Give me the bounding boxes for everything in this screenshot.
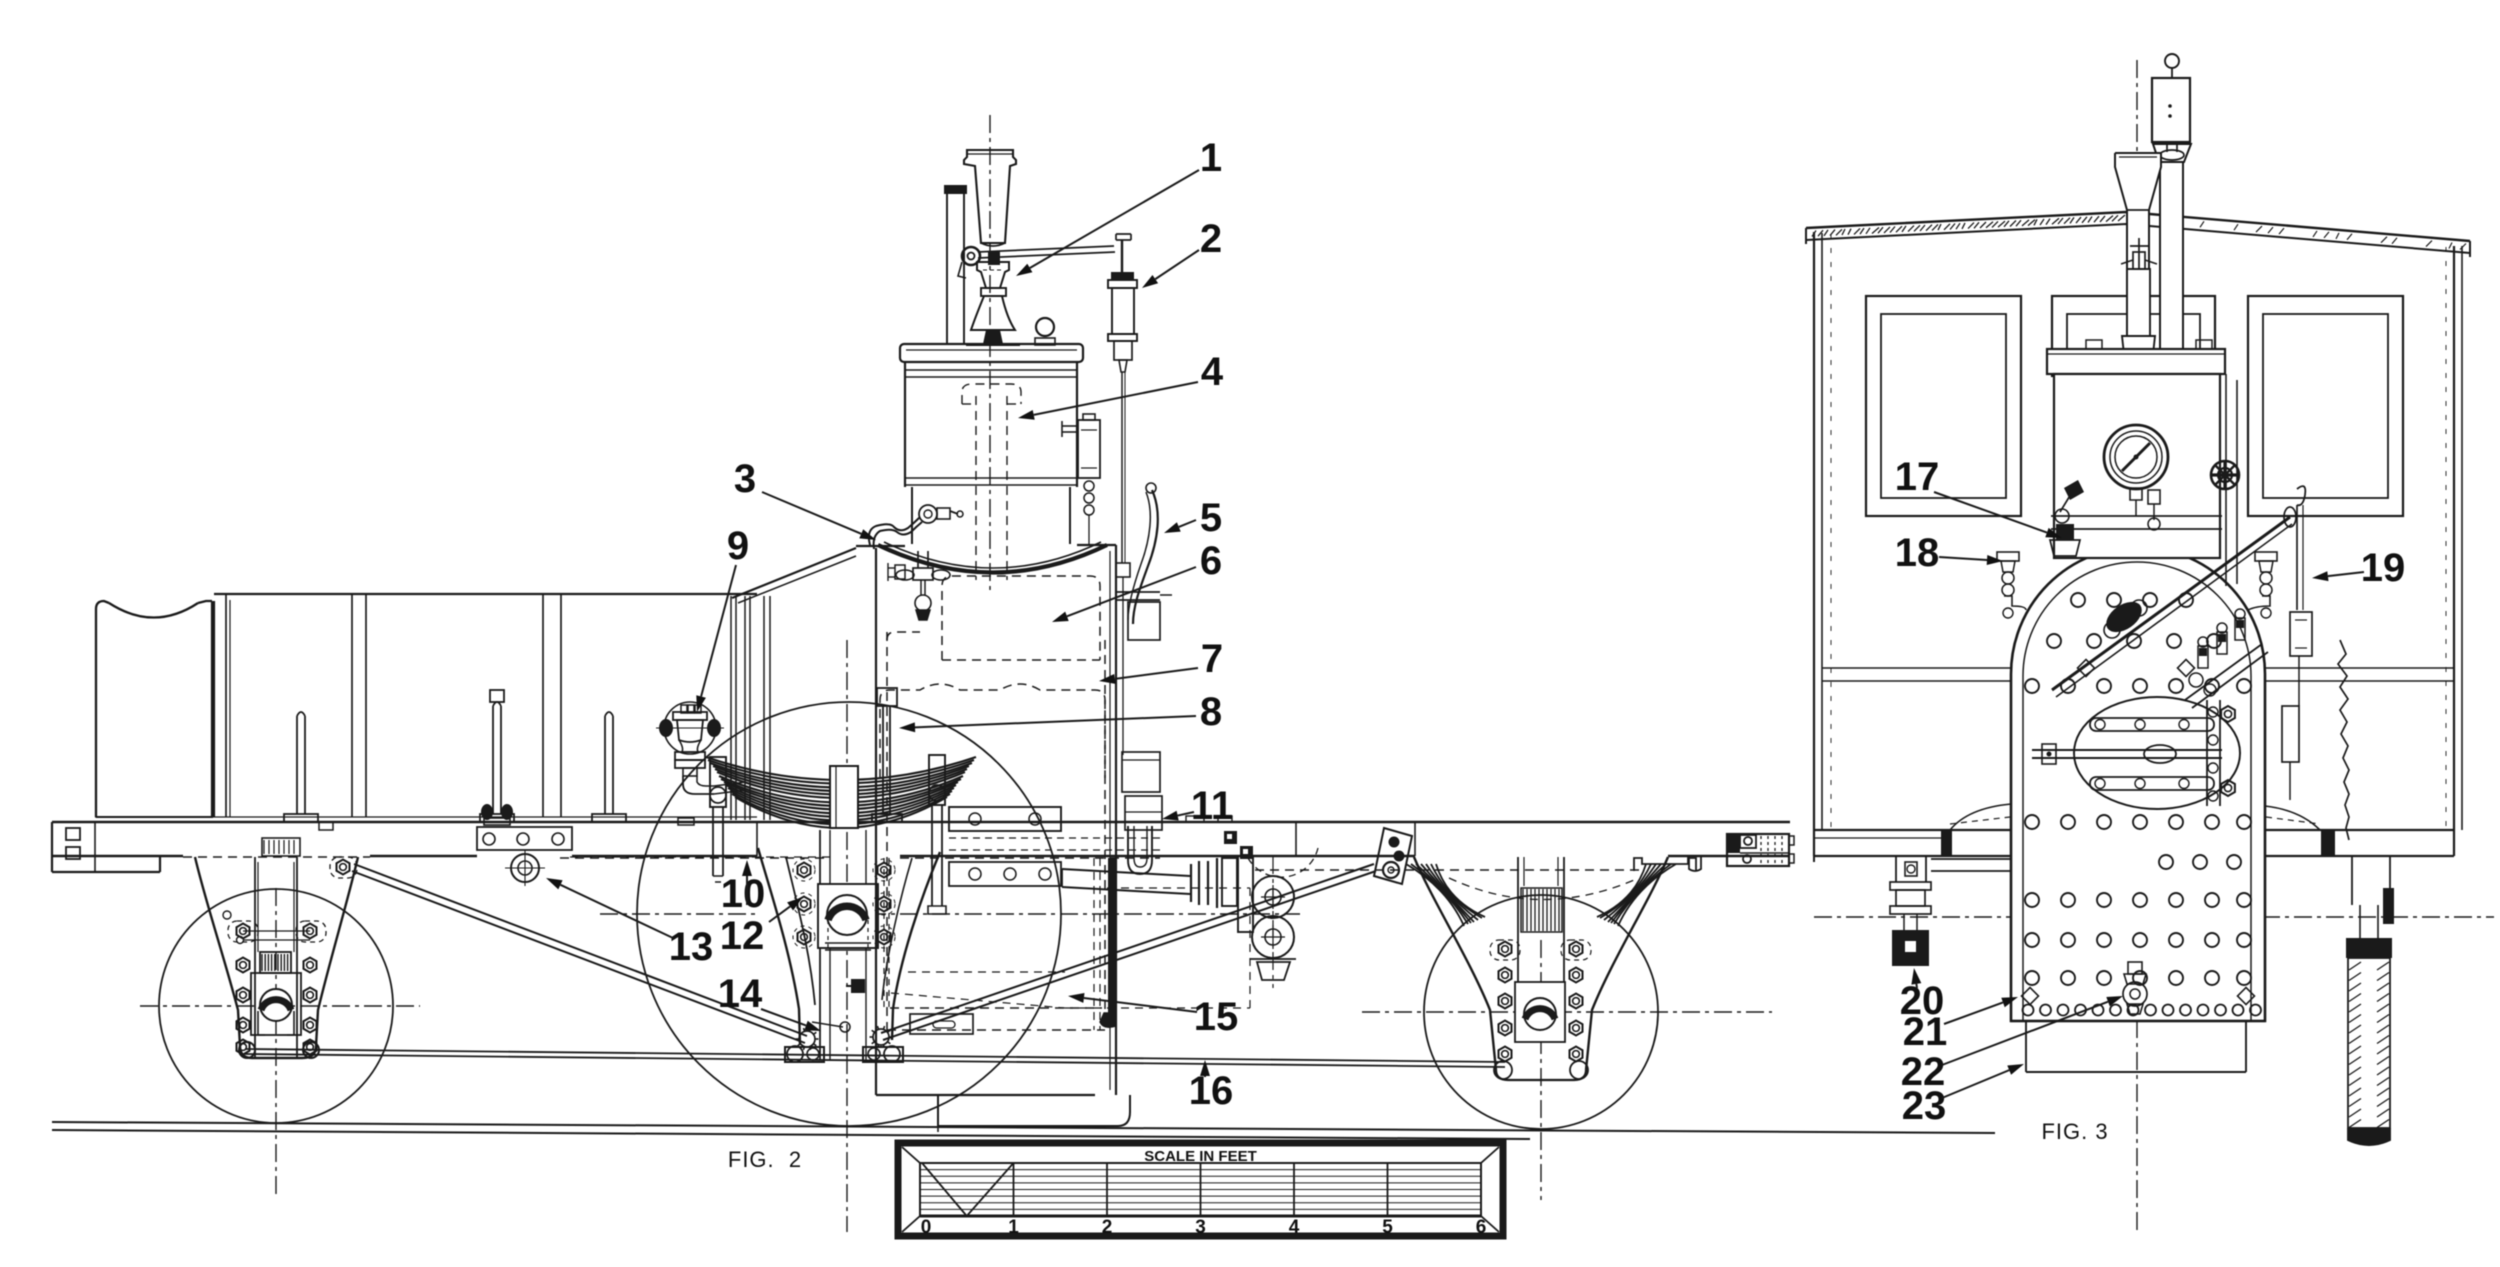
- svg-text:17: 17: [1895, 455, 1940, 499]
- svg-text:2: 2: [1200, 217, 1222, 261]
- svg-text:10: 10: [721, 872, 766, 916]
- svg-text:6: 6: [1476, 1217, 1487, 1238]
- svg-text:11: 11: [1191, 784, 1233, 828]
- svg-text:18: 18: [1895, 531, 1940, 575]
- svg-text:23: 23: [1902, 1084, 1947, 1128]
- svg-text:16: 16: [1189, 1069, 1234, 1113]
- svg-text:5: 5: [1200, 496, 1222, 540]
- svg-text:FIG. 2: FIG. 2: [728, 1147, 802, 1172]
- svg-text:19: 19: [2361, 546, 2406, 590]
- svg-text:15: 15: [1194, 995, 1239, 1039]
- svg-text:4: 4: [1201, 350, 1224, 394]
- svg-text:6: 6: [1200, 539, 1222, 583]
- svg-text:12: 12: [720, 914, 765, 958]
- svg-text:4: 4: [1289, 1217, 1300, 1238]
- svg-text:2: 2: [1102, 1217, 1113, 1238]
- svg-text:1: 1: [1008, 1217, 1019, 1238]
- svg-text:13: 13: [669, 925, 714, 969]
- svg-text:1: 1: [1200, 136, 1222, 180]
- svg-text:9: 9: [727, 524, 749, 568]
- svg-text:3: 3: [734, 457, 756, 501]
- svg-text:SCALE IN FEET: SCALE IN FEET: [1144, 1148, 1257, 1165]
- svg-text:8: 8: [1200, 690, 1222, 734]
- svg-text:5: 5: [1382, 1217, 1393, 1238]
- svg-text:FIG. 3: FIG. 3: [2041, 1119, 2108, 1144]
- svg-text:14: 14: [718, 972, 763, 1016]
- svg-text:21: 21: [1903, 1010, 1948, 1054]
- svg-text:7: 7: [1201, 637, 1223, 681]
- svg-text:3: 3: [1195, 1217, 1206, 1238]
- svg-text:0: 0: [921, 1217, 932, 1238]
